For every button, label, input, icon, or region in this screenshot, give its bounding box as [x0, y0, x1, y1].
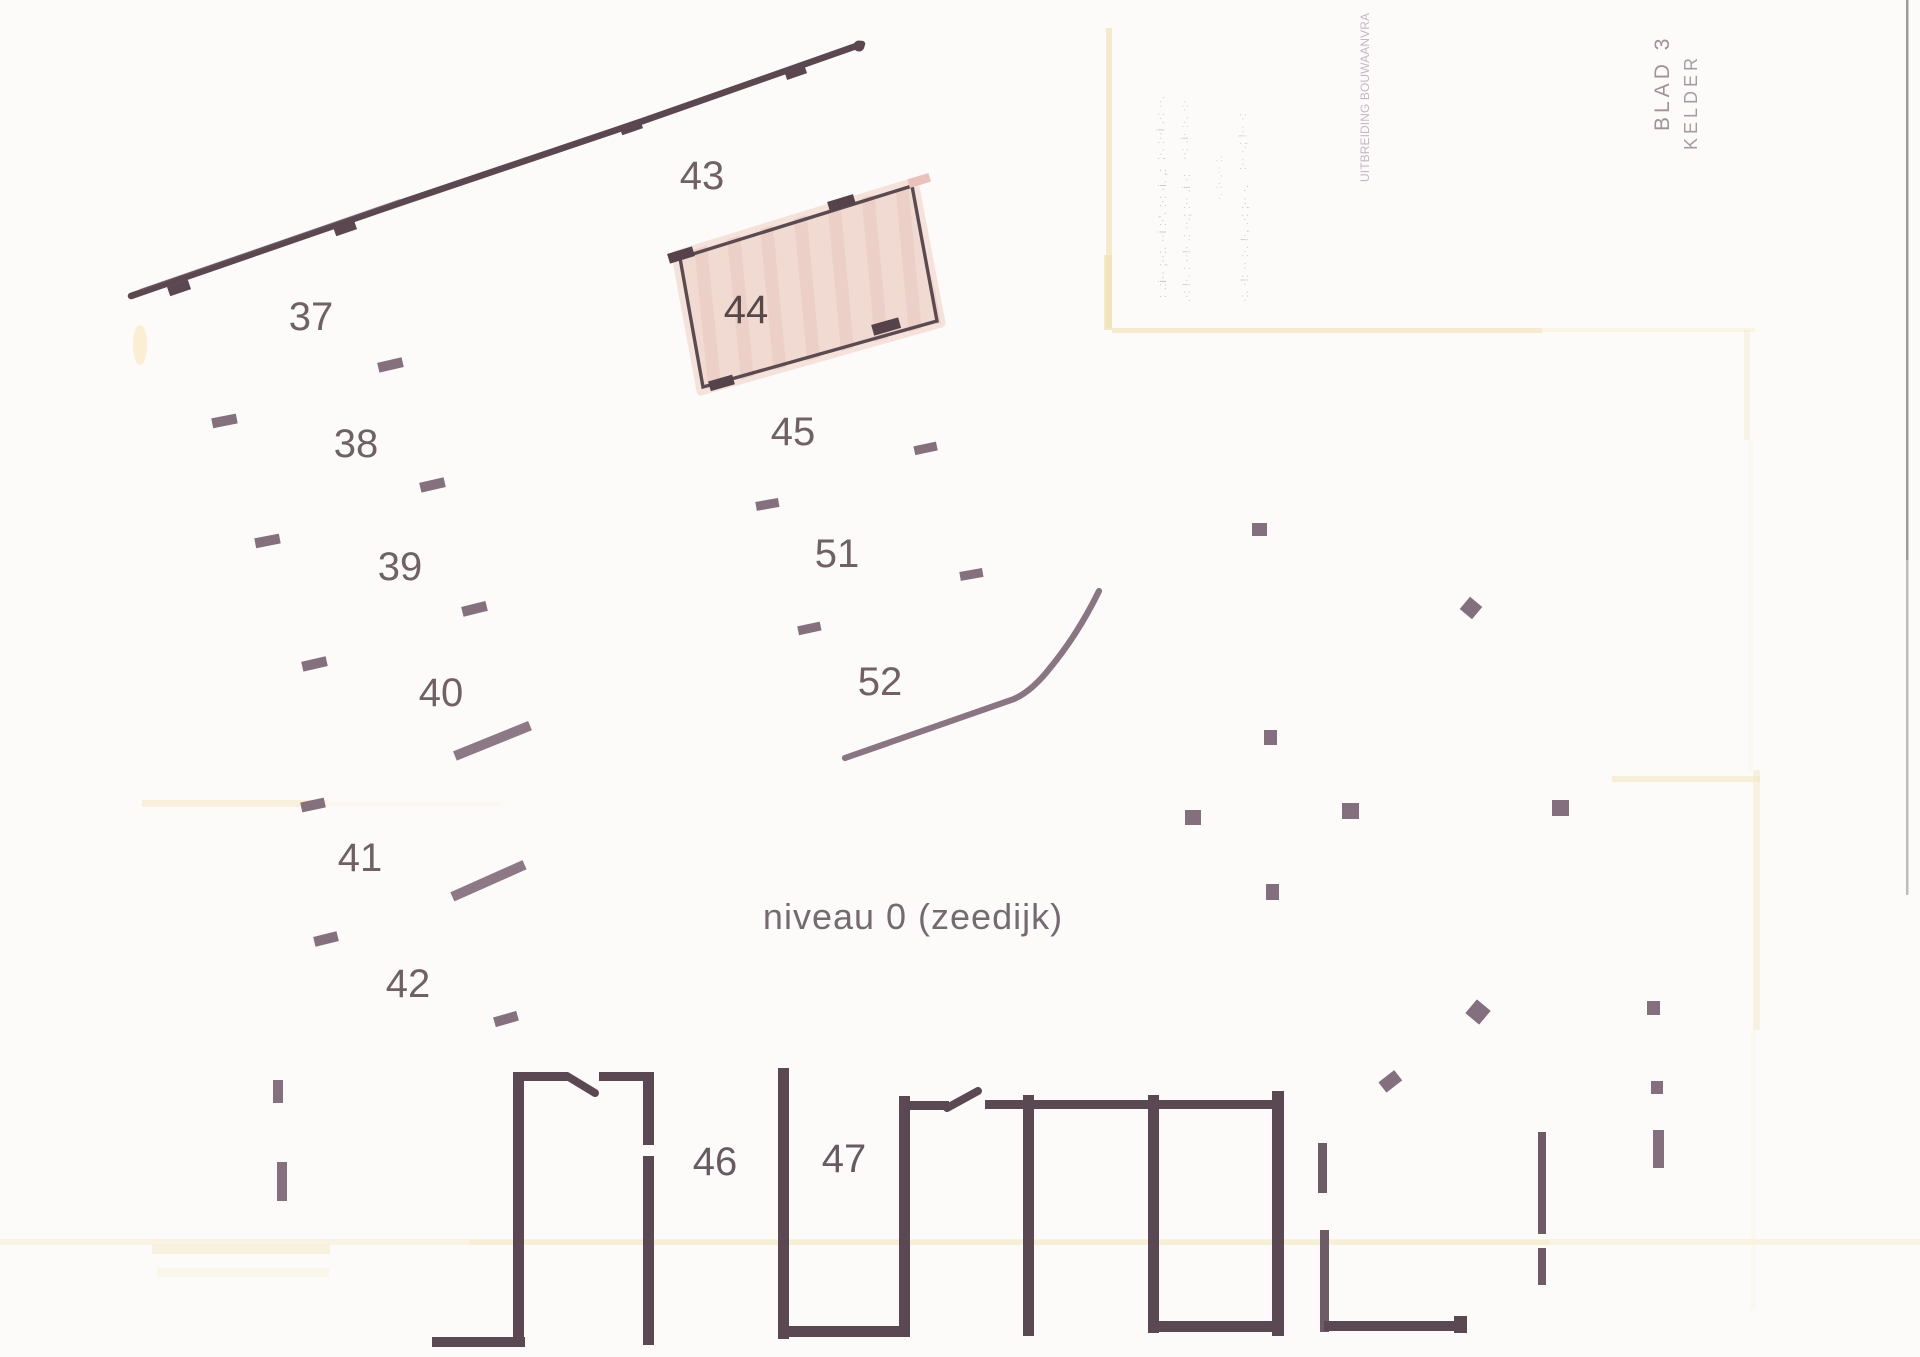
svg-text:UITBREIDING BOUWAANVRA: UITBREIDING BOUWAANVRA — [1358, 13, 1372, 182]
svg-text:BLAD 3: BLAD 3 — [1651, 35, 1674, 131]
svg-text:42: 42 — [386, 962, 431, 1006]
svg-text::·· ·.; !·· ·:: :·· ·.; !·· ·: — [1237, 112, 1249, 170]
svg-text:47: 47 — [822, 1137, 867, 1181]
svg-text:·. :· .·· :.: ·. :· .·· :. — [1214, 155, 1225, 200]
svg-text:43: 43 — [680, 154, 725, 198]
svg-text:52: 52 — [858, 660, 903, 704]
svg-text:51: 51 — [815, 532, 860, 576]
svg-text:KELDER: KELDER — [1681, 54, 1701, 150]
svg-text:41: 41 — [338, 836, 383, 880]
svg-text:39: 39 — [378, 545, 423, 589]
svg-text:··: .i· :·. ·:·: ··: .i· :·. ·:· — [1179, 99, 1191, 160]
svg-text:: .:i·· ;··:. ··i :·'. :·: ·: : .:i·· ;··:. ··i :·'. :·: ·i. ,: — [1157, 168, 1169, 298]
svg-text:40: 40 — [419, 671, 464, 715]
svg-text:niveau 0 (zeedijk): niveau 0 (zeedijk) — [763, 896, 1063, 937]
svg-text:45: 45 — [771, 410, 816, 454]
svg-text:·:. ·!: ·· :·. !·, .·: ;·· ·.: ·:. ·!: ·· :·. !·, .·: ;·· ·. — [1239, 184, 1251, 302]
svg-text:38: 38 — [334, 422, 379, 466]
svg-text:37: 37 — [289, 295, 334, 339]
svg-text:44: 44 — [724, 288, 769, 332]
svg-text:.·: !·. : ··!· .: ··.; :·· .i: .·: !·. : ··!· .: ··.; :·· .i ·: — [1181, 173, 1193, 302]
svg-text:;·. :··i .·: ··.: ;·. :··i .·: ··. — [1155, 95, 1167, 160]
svg-text:46: 46 — [693, 1140, 738, 1184]
